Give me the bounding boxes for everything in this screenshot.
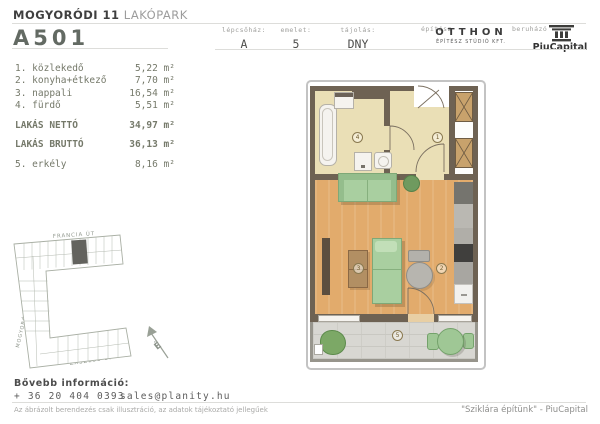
- entrance-door-arc: [418, 86, 444, 108]
- plan-label-living: 3: [353, 263, 364, 274]
- total-net-label: LAKÁS NETTÓ: [15, 120, 78, 132]
- plan-label-bathroom: 4: [352, 132, 363, 143]
- footer-info-title: Bővebb információ:: [14, 378, 129, 389]
- balcony-row: 5. erkély8,16 m²: [15, 159, 175, 171]
- total-gross-row: LAKÁS BRUTTÓ36,13 m²: [15, 139, 175, 151]
- project-title-light: LAKÓPARK: [120, 8, 188, 22]
- plan-label-kitchen: 2: [436, 263, 447, 274]
- total-net-area: 34,97 m²: [129, 120, 175, 132]
- room-area: 7,70 m²: [135, 75, 175, 87]
- total-gross-label: LAKÁS BRUTTÓ: [15, 139, 84, 151]
- highlighted-unit: [71, 239, 88, 264]
- room-row: 3. nappali16,54 m²: [15, 88, 175, 100]
- architect-subtitle: ÉPÍTÉSZ STÚDIÓ KFT.: [432, 40, 510, 45]
- footer-divider: [12, 402, 586, 403]
- architect-name: OTTHON: [432, 27, 510, 38]
- meta-staircase: lépcsőház: A: [218, 26, 270, 51]
- header-divider-left: [12, 48, 168, 49]
- plan-label-hallway: 1: [432, 132, 443, 143]
- floorplan-datasheet: MOGYORÓDI 11 LAKÓPARK A501 lépcsőház: A …: [0, 0, 600, 424]
- meta-orientation-label: tájolás:: [330, 26, 386, 34]
- floor-plan: 1 2 3 4 5: [306, 80, 486, 370]
- developer-name: PiuCapital: [528, 42, 592, 53]
- room-name: 4. fürdő: [15, 100, 61, 112]
- meta-orientation: tájolás: DNY: [330, 26, 386, 51]
- footer-phone: + 36 20 404 0393: [14, 391, 125, 402]
- header-divider-top: [12, 23, 586, 24]
- meta-staircase-label: lépcsőház:: [218, 26, 270, 34]
- meta-floor-label: emelet:: [272, 26, 320, 34]
- footer-email: sales@planity.hu: [120, 391, 231, 402]
- room-name: 1. közlekedő: [15, 63, 84, 75]
- room-row: 1. közlekedő5,22 m²: [15, 63, 175, 75]
- room-name: 2. konyha+étkező: [15, 75, 107, 87]
- piucapital-column-icon: [548, 25, 575, 42]
- total-net-row: LAKÁS NETTÓ34,97 m²: [15, 120, 175, 132]
- header-divider-right: [215, 49, 586, 50]
- door-swing-overlay: [308, 82, 480, 364]
- footer-disclaimer: Az ábrázolt berendezés csak illusztráció…: [14, 406, 268, 414]
- developer-label: beruházó: [512, 25, 547, 33]
- project-title-bold: MOGYORÓDI 11: [13, 8, 120, 22]
- room-row: 2. konyha+étkező7,70 m²: [15, 75, 175, 87]
- total-gross-area: 36,13 m²: [129, 139, 175, 151]
- room-area: 5,51 m²: [135, 100, 175, 112]
- room-area: 5,22 m²: [135, 63, 175, 75]
- unit-id: A501: [13, 26, 89, 50]
- footer-slogan: "Sziklára építünk" - PiuCapital: [461, 405, 588, 415]
- room-name: 3. nappali: [15, 88, 72, 100]
- balcony-door-arc: [408, 288, 434, 314]
- north-arrow: É: [147, 326, 168, 358]
- room-list: 1. közlekedő5,22 m² 2. konyha+étkező7,70…: [15, 63, 175, 172]
- meta-floor: emelet: 5: [272, 26, 320, 51]
- north-label: É: [151, 339, 163, 352]
- shaft-hatch-lines: [455, 92, 473, 168]
- room-area: 16,54 m²: [129, 88, 175, 100]
- balcony-name: 5. erkély: [15, 159, 66, 171]
- project-title: MOGYORÓDI 11 LAKÓPARK: [13, 8, 188, 22]
- room-row: 4. fürdő5,51 m²: [15, 100, 175, 112]
- plan-label-balcony: 5: [392, 330, 403, 341]
- bathroom-door-arc: [390, 126, 414, 150]
- hallway-door-arc: [416, 144, 444, 172]
- balcony-area: 8,16 m²: [135, 159, 175, 171]
- site-plan: FRANCIA ÚT MOGYORÓDI ÚT ZÁSZLÓS U. É: [10, 226, 195, 376]
